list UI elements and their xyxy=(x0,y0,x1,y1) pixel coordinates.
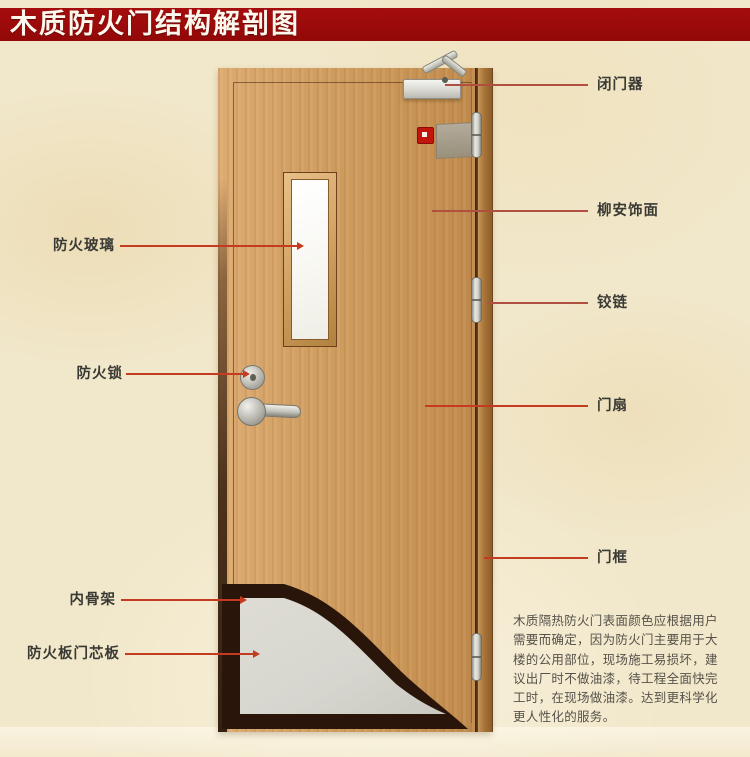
door-assembly xyxy=(218,68,492,732)
door-closer xyxy=(403,79,461,99)
label-fire-lock: 防火锁 xyxy=(77,366,124,383)
note-line: 木质隔热防火门表面颜色应根据用户 xyxy=(513,612,723,631)
label-inner-skeleton: 内骨架 xyxy=(70,592,117,609)
label-fireproof-core-board: 防火板门芯板 xyxy=(27,646,120,663)
note-line: 需要而确定，因为防火门主要用于大 xyxy=(513,631,723,650)
top-hinge xyxy=(471,112,482,158)
note-line: 议出厂时不做油漆，待工程全面快完 xyxy=(513,670,723,689)
label-door-closer: 闭门器 xyxy=(597,77,644,94)
label-door-leaf: 门扇 xyxy=(597,398,628,415)
label-hinge: 铰链 xyxy=(597,295,628,312)
callout-line-fire-glass xyxy=(120,245,297,247)
arrow-right-icon xyxy=(243,370,250,378)
metal-patch xyxy=(436,122,473,159)
callout-line-door-closer xyxy=(445,84,588,86)
callout-line-lauan-veneer xyxy=(432,210,588,212)
note-line: 更人性化的服务。 xyxy=(513,708,723,727)
arrow-right-icon xyxy=(253,650,260,658)
infographic-canvas: 木质防火门结构解剖图 xyxy=(0,0,750,757)
description-note: 木质隔热防火门表面颜色应根据用户 需要而确定，因为防火门主要用于大 楼的公用部位… xyxy=(513,612,723,728)
door-frame xyxy=(478,68,493,732)
note-line: 工时，在现场做油漆。达到更科学化 xyxy=(513,689,723,708)
fire-glass xyxy=(291,179,329,340)
callout-line-inner-skeleton xyxy=(121,599,240,601)
alarm-indicator xyxy=(417,127,434,144)
label-door-frame: 门框 xyxy=(597,550,628,567)
bottom-hinge xyxy=(471,633,482,681)
callout-line-hinge xyxy=(487,302,588,304)
callout-line-door-leaf xyxy=(425,405,588,407)
arrow-right-icon xyxy=(240,596,247,604)
door-closer-pivot xyxy=(442,77,448,83)
handle-rose xyxy=(237,397,266,426)
page-title: 木质防火门结构解剖图 xyxy=(0,11,300,38)
callout-line-fire-lock xyxy=(126,373,243,375)
arrow-right-icon xyxy=(297,242,304,250)
note-line: 楼的公用部位，现场施工易损坏，建 xyxy=(513,651,723,670)
fire-glass-window xyxy=(283,172,337,347)
label-lauan-veneer: 柳安饰面 xyxy=(597,203,659,220)
middle-hinge xyxy=(471,277,482,323)
callout-line-door-frame xyxy=(484,557,588,559)
callout-line-core-board xyxy=(125,653,253,655)
label-fire-glass: 防火玻璃 xyxy=(53,238,115,255)
title-banner: 木质防火门结构解剖图 xyxy=(0,8,750,41)
